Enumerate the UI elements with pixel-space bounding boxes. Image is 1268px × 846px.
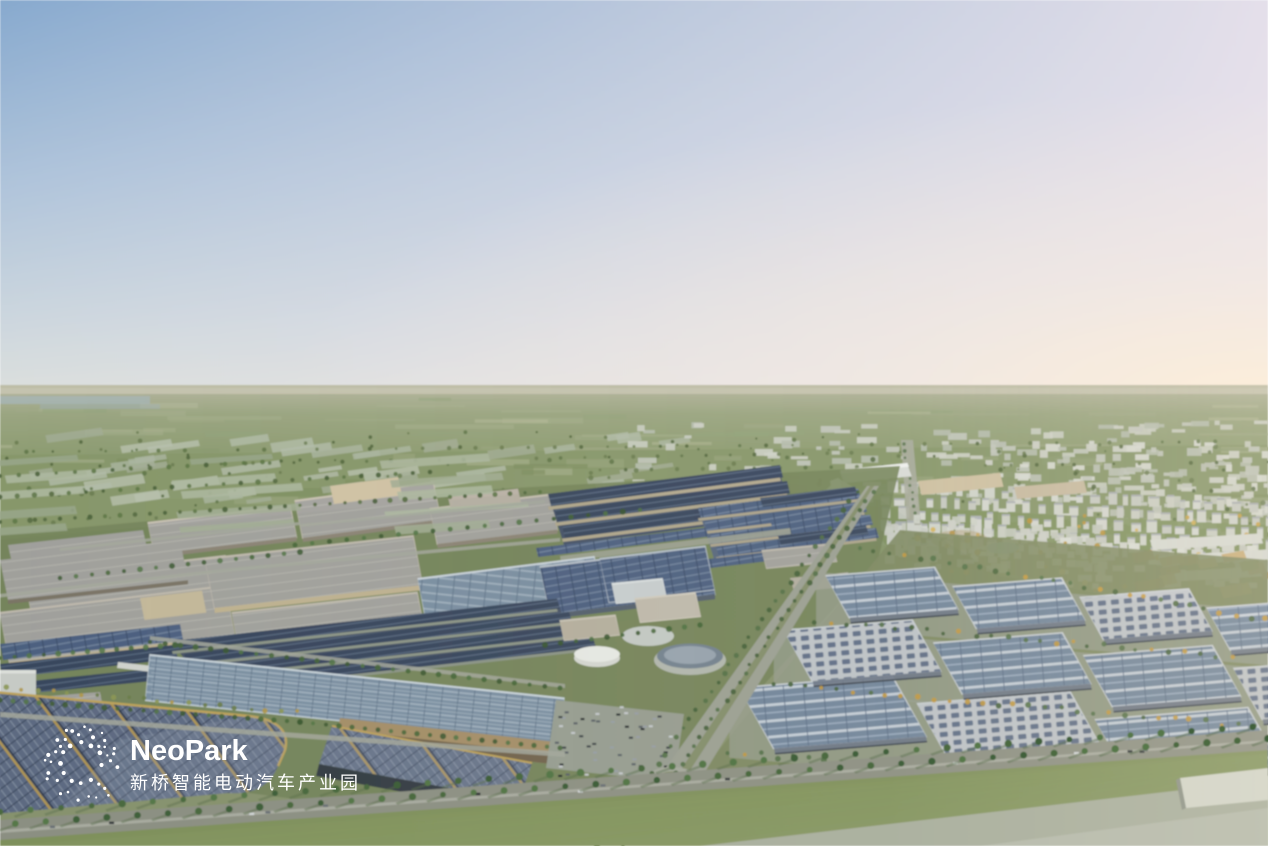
svg-text:新桥智能电动汽车产业园: 新桥智能电动汽车产业园 bbox=[130, 773, 361, 793]
svg-text:NeoPark: NeoPark bbox=[130, 735, 249, 767]
